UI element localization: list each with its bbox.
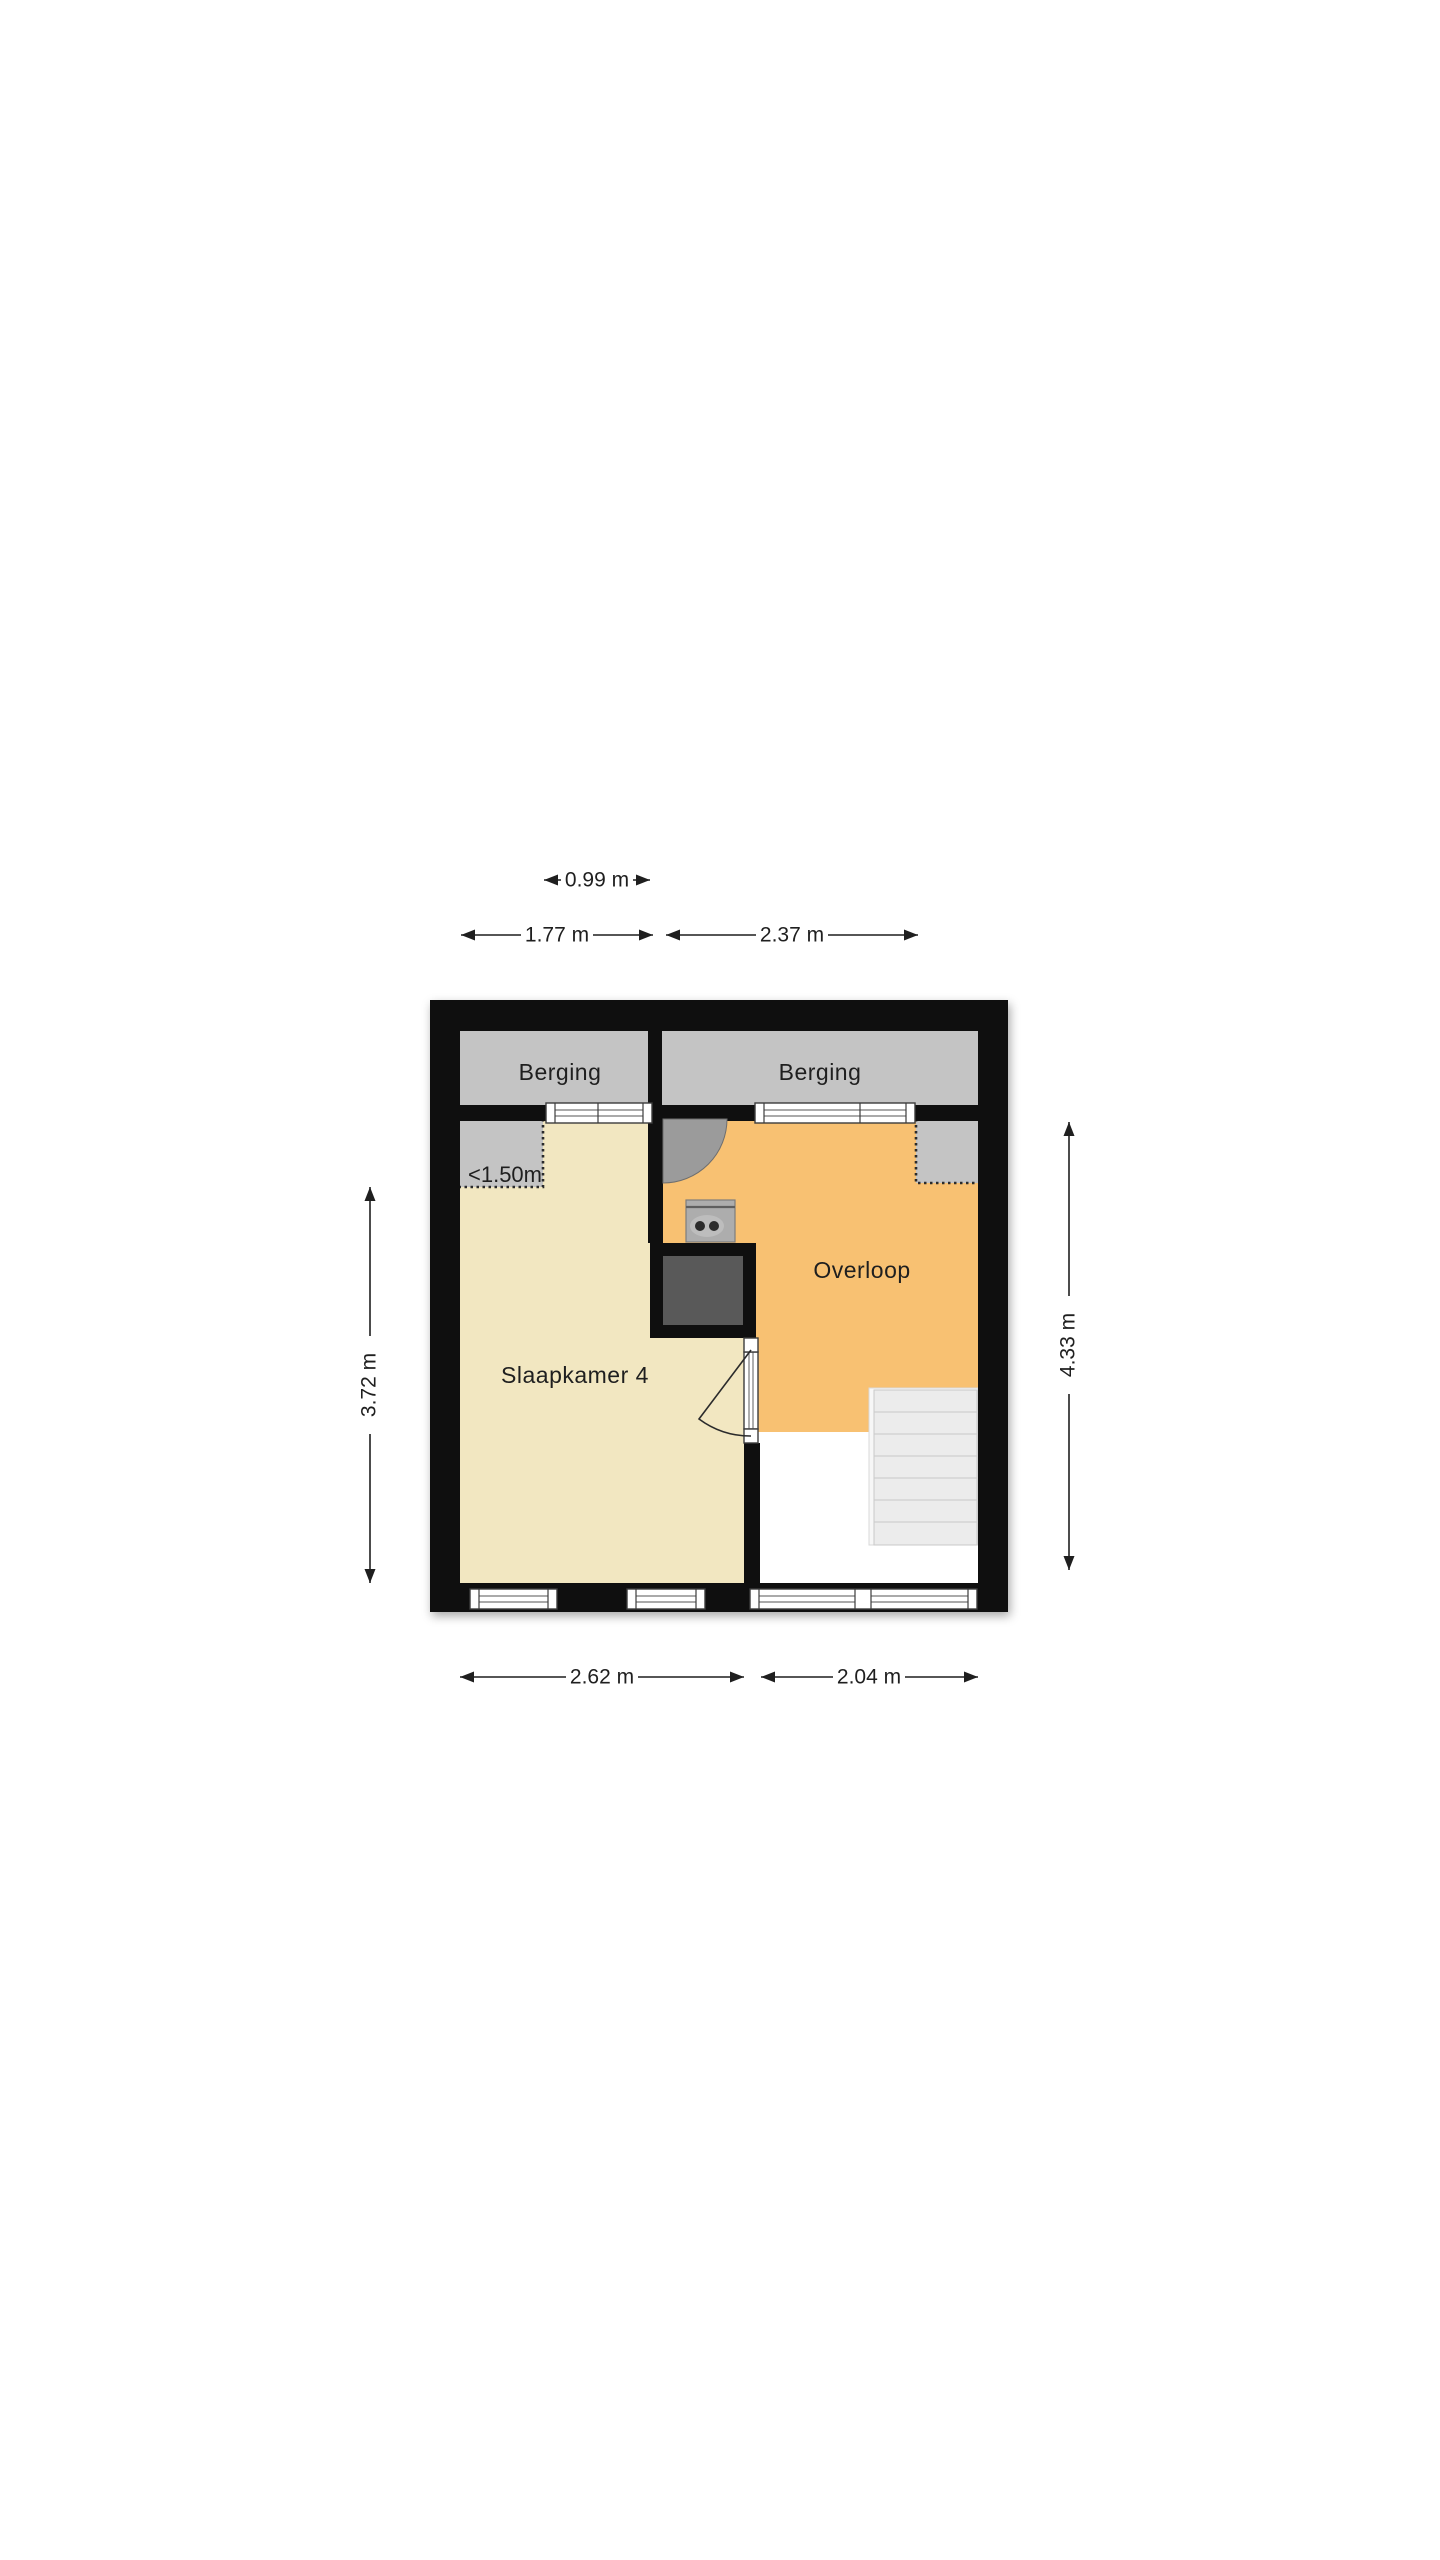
berging-right-window-icon	[755, 1103, 915, 1123]
stairs-icon	[869, 1388, 978, 1545]
bottom-window-left-icon	[470, 1589, 557, 1609]
floorplan-page: Berging Berging Overloop Slaapkamer 4 <1…	[0, 0, 1440, 2560]
wall-outer-left	[430, 1000, 460, 1612]
room-label-slaapkamer-4: Slaapkamer 4	[501, 1362, 649, 1388]
closet-shaft	[650, 1243, 756, 1338]
wall-berging-divider	[648, 1031, 662, 1105]
low-ceiling-zone-right	[916, 1119, 978, 1183]
wall-outer-right	[978, 1000, 1008, 1612]
room-label-berging-left: Berging	[519, 1059, 602, 1085]
room-label-berging-right: Berging	[779, 1059, 862, 1085]
wall-interior-bottom	[744, 1443, 760, 1583]
floorplan-plan: Berging Berging Overloop Slaapkamer 4 <1…	[430, 1000, 1008, 1612]
low-ceiling-label: <1.50m	[468, 1162, 542, 1187]
dimension-top-right: 2.37 m	[760, 924, 824, 947]
wall-interior-top	[648, 1119, 663, 1243]
dimension-side-left: 3.72 m	[358, 1353, 381, 1417]
floorplan-drawing: Berging Berging Overloop Slaapkamer 4 <1…	[0, 0, 1440, 2560]
berging-left-window-icon	[546, 1103, 652, 1123]
dimension-bottom-left: 2.62 m	[570, 1666, 634, 1689]
bottom-window-middle-icon	[627, 1589, 705, 1609]
room-label-overloop: Overloop	[813, 1257, 910, 1283]
dimension-side-right: 4.33 m	[1057, 1313, 1080, 1377]
appliance-icon	[686, 1200, 735, 1242]
dimension-bottom-right: 2.04 m	[837, 1666, 901, 1689]
dimension-top-inner: 0.99 m	[565, 869, 629, 892]
dimension-top-left: 1.77 m	[525, 924, 589, 947]
bottom-window-right-icon	[750, 1589, 977, 1609]
wall-outer-top	[430, 1000, 1008, 1031]
